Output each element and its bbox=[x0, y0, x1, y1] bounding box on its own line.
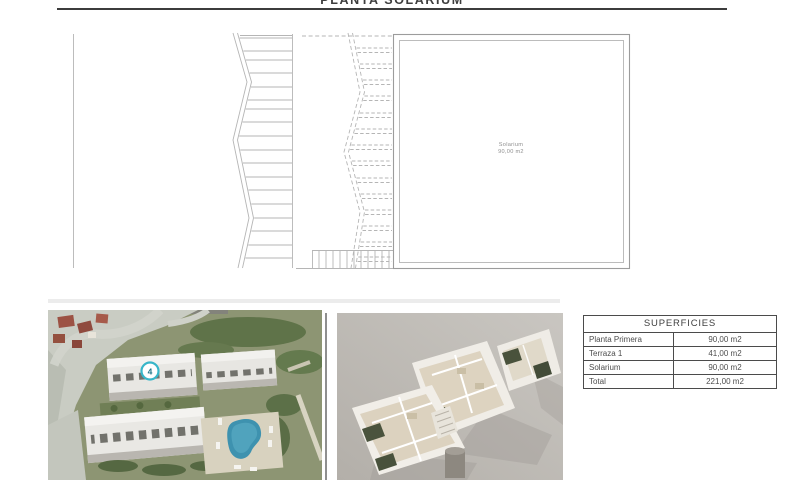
document-page: PLANTA SOLARIUM bbox=[0, 0, 800, 480]
roof-hatch-dashed bbox=[350, 48, 392, 262]
row-value: 221,00 m2 bbox=[674, 375, 776, 388]
row-label: Terraza 1 bbox=[584, 347, 674, 360]
apartment-block-upper-right bbox=[201, 349, 277, 390]
pool-area bbox=[201, 412, 284, 475]
row-value: 41,00 m2 bbox=[674, 347, 776, 360]
table-row: Terraza 1 41,00 m2 bbox=[584, 347, 776, 361]
row-value: 90,00 m2 bbox=[674, 361, 776, 374]
room-area-label: 90,00 m2 bbox=[498, 149, 524, 155]
cut-line-solid bbox=[233, 33, 254, 268]
table-header-cell: SUPERFICIES bbox=[584, 316, 776, 333]
isometric-floor-model bbox=[337, 313, 563, 480]
stair-strip bbox=[296, 250, 393, 269]
room-label: Solarium bbox=[499, 142, 524, 148]
table-row: Planta Primera 90,00 m2 bbox=[584, 333, 776, 347]
table-row: Solarium 90,00 m2 bbox=[584, 361, 776, 375]
row-value: 90,00 m2 bbox=[674, 333, 776, 346]
stair-tower bbox=[445, 447, 465, 478]
row-label: Total bbox=[584, 375, 674, 388]
image-divider bbox=[325, 313, 327, 480]
images-top-shadow bbox=[48, 299, 560, 303]
location-marker: 4 bbox=[142, 363, 159, 380]
table-row: Total 221,00 m2 bbox=[584, 375, 776, 388]
row-label: Planta Primera bbox=[584, 333, 674, 346]
marker-label: 4 bbox=[148, 367, 153, 377]
aerial-site-render: 4 bbox=[48, 310, 322, 480]
floor-plan-drawing: Solarium 90,00 m2 bbox=[0, 0, 800, 290]
row-label: Solarium bbox=[584, 361, 674, 374]
superficies-table: SUPERFICIES Planta Primera 90,00 m2 Terr… bbox=[583, 315, 777, 389]
